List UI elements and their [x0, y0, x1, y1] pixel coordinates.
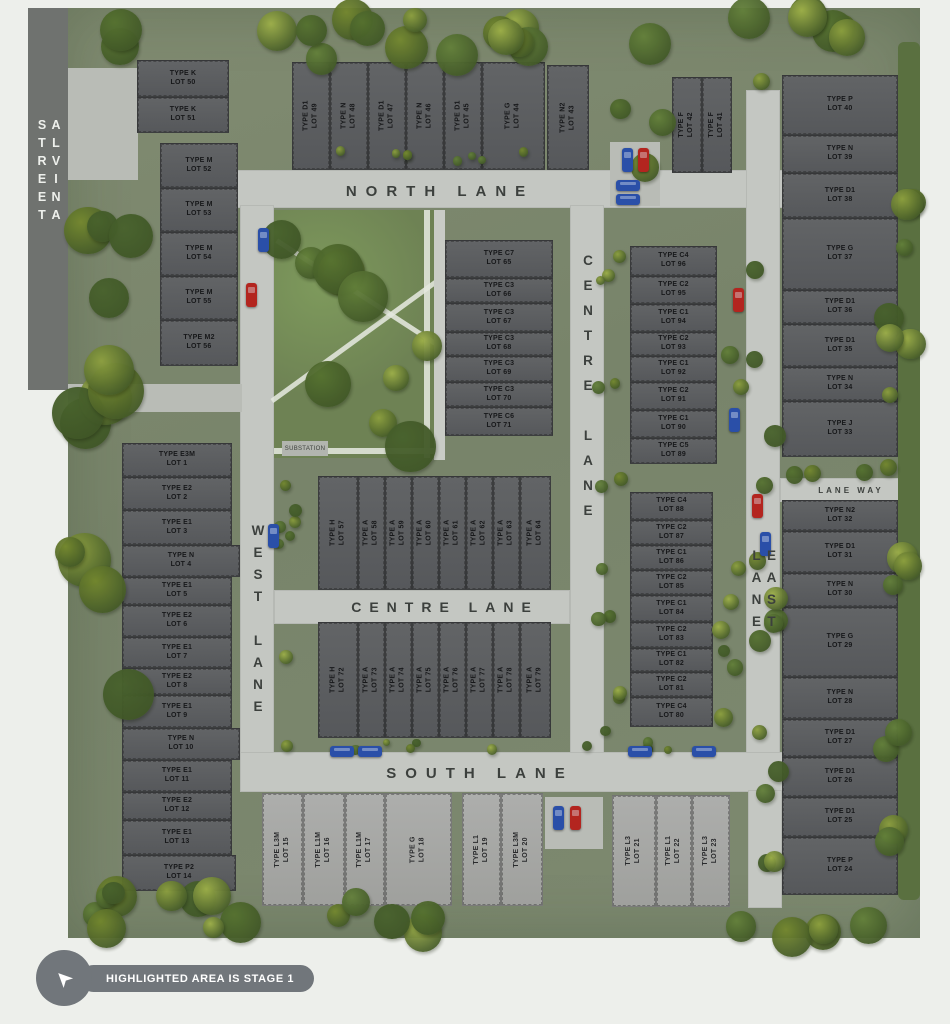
lot-50[interactable]: TYPE KLOT 50: [137, 60, 229, 97]
tree-icon: [885, 719, 912, 746]
lot-61[interactable]: TYPE ALOT 61: [439, 476, 466, 590]
tree-icon: [712, 621, 730, 639]
lot-92[interactable]: TYPE C1LOT 92: [630, 356, 717, 382]
lot-54[interactable]: TYPE MLOT 54: [160, 232, 238, 276]
lot-28[interactable]: TYPE NLOT 28: [782, 677, 898, 719]
lot-68[interactable]: TYPE C3LOT 68: [445, 332, 553, 356]
lot-60[interactable]: TYPE ALOT 60: [412, 476, 439, 590]
tree-icon: [289, 516, 301, 528]
tree-icon: [726, 911, 756, 941]
lot-88[interactable]: TYPE C4LOT 88: [630, 492, 713, 520]
lot-76[interactable]: TYPE ALOT 76: [439, 622, 466, 738]
lot-56[interactable]: TYPE M2LOT 56: [160, 320, 238, 366]
lot-66[interactable]: TYPE C3LOT 66: [445, 278, 553, 303]
tree-icon: [649, 109, 676, 136]
lot-89[interactable]: TYPE C5LOT 89: [630, 438, 717, 464]
lot-29[interactable]: TYPE GLOT 29: [782, 607, 898, 677]
lot-51[interactable]: TYPE KLOT 51: [137, 97, 229, 133]
lot-43[interactable]: TYPE N2LOT 43: [547, 65, 589, 170]
lot-22[interactable]: TYPE L1LOT 22: [656, 795, 692, 907]
lot-94[interactable]: TYPE C1LOT 94: [630, 304, 717, 332]
lot-65[interactable]: TYPE C7LOT 65: [445, 240, 553, 278]
car-icon: [622, 148, 633, 172]
lot-39[interactable]: TYPE NLOT 39: [782, 135, 898, 173]
tree-icon: [281, 740, 293, 752]
lot-57[interactable]: TYPE HLOT 57: [318, 476, 358, 590]
tree-icon: [412, 331, 442, 361]
street-label-centre-lane-horizontal: CENTRE LANE: [330, 590, 560, 624]
lot-95[interactable]: TYPE C2LOT 95: [630, 276, 717, 304]
car-icon: [729, 408, 740, 432]
car-icon: [258, 228, 269, 252]
road-south-stub: [748, 790, 782, 908]
lot-72[interactable]: TYPE HLOT 72: [318, 622, 358, 738]
lot-18[interactable]: TYPE GLOT 18: [385, 793, 452, 906]
tree-icon: [600, 726, 610, 736]
lot-91[interactable]: TYPE C2LOT 91: [630, 382, 717, 410]
tree-icon: [79, 566, 126, 613]
lot-30[interactable]: TYPE NLOT 30: [782, 573, 898, 607]
car-icon: [638, 148, 649, 172]
street-label-lane-way: LANE WAY: [796, 482, 906, 498]
tree-icon: [383, 739, 390, 746]
hedge-right: [898, 42, 920, 900]
car-icon: [692, 746, 716, 757]
tree-icon: [203, 917, 224, 938]
tree-icon: [772, 917, 813, 958]
lot-79[interactable]: TYPE ALOT 79: [520, 622, 551, 738]
lot-12[interactable]: TYPE E2LOT 12: [122, 792, 232, 820]
tree-icon: [894, 552, 921, 579]
tree-icon: [756, 477, 773, 494]
lot-75[interactable]: TYPE ALOT 75: [412, 622, 439, 738]
lot-77[interactable]: TYPE ALOT 77: [466, 622, 493, 738]
tree-icon: [336, 146, 345, 155]
lot-11[interactable]: TYPE E1LOT 11: [122, 760, 232, 792]
lot-83[interactable]: TYPE C2LOT 83: [630, 622, 713, 648]
lot-2[interactable]: TYPE E2LOT 2: [122, 477, 232, 510]
tree-icon: [296, 15, 327, 46]
lot-96[interactable]: TYPE C4LOT 96: [630, 246, 717, 276]
tree-icon: [100, 9, 142, 51]
lot-7[interactable]: TYPE E1LOT 7: [122, 637, 232, 668]
tree-icon: [768, 761, 789, 782]
tree-icon: [610, 99, 630, 119]
tree-icon: [664, 746, 672, 754]
lot-37[interactable]: TYPE GLOT 37: [782, 218, 898, 290]
tree-icon: [55, 537, 85, 567]
tree-icon: [629, 23, 671, 65]
lot-47[interactable]: TYPE D1LOT 47: [368, 62, 406, 170]
stage-arrow-icon: ➤: [36, 950, 92, 1006]
tree-icon: [103, 669, 154, 720]
lot-44[interactable]: TYPE GLOT 44: [482, 62, 545, 170]
lot-42[interactable]: TYPE FLOT 42: [672, 77, 702, 173]
tree-icon: [102, 882, 125, 905]
lot-74[interactable]: TYPE ALOT 74: [385, 622, 412, 738]
lot-15[interactable]: TYPE L3MLOT 15: [262, 793, 303, 906]
tree-icon: [305, 361, 351, 407]
tree-icon: [385, 421, 435, 471]
tree-icon: [883, 575, 903, 595]
car-icon: [628, 746, 652, 757]
lot-16[interactable]: TYPE L1MLOT 16: [303, 793, 345, 906]
tree-icon: [718, 645, 730, 657]
tree-icon: [89, 278, 129, 318]
tree-icon: [87, 909, 126, 948]
tree-icon: [338, 271, 389, 322]
tree-icon: [896, 239, 913, 256]
lot-59[interactable]: TYPE ALOT 59: [385, 476, 412, 590]
tree-icon: [488, 19, 524, 55]
lot-45[interactable]: TYPE D1LOT 45: [444, 62, 482, 170]
lot-40[interactable]: TYPE PLOT 40: [782, 75, 898, 135]
lot-71[interactable]: TYPE C6LOT 71: [445, 407, 553, 436]
lot-4[interactable]: TYPE NLOT 4: [122, 545, 240, 577]
tree-icon: [306, 43, 337, 74]
street-label-centre-lane-vertical: CENTRE LANE: [573, 245, 603, 535]
lot-86[interactable]: TYPE C1LOT 86: [630, 545, 713, 570]
lot-82[interactable]: TYPE C1LOT 82: [630, 648, 713, 672]
tree-icon: [610, 378, 620, 388]
tree-icon: [733, 379, 749, 395]
lot-62[interactable]: TYPE ALOT 62: [466, 476, 493, 590]
substation-label: SUBSTATION: [282, 441, 328, 456]
lot-58[interactable]: TYPE ALOT 58: [358, 476, 385, 590]
tree-icon: [411, 901, 445, 935]
tree-icon: [257, 11, 297, 51]
tree-icon: [342, 888, 370, 916]
tree-icon: [613, 686, 627, 700]
tree-icon: [746, 261, 764, 279]
tree-icon: [891, 189, 922, 220]
lot-53[interactable]: TYPE MLOT 53: [160, 188, 238, 232]
lot-32[interactable]: TYPE N2LOT 32: [782, 500, 898, 531]
lot-21[interactable]: TYPE L3LOT 21: [612, 795, 656, 907]
lot-10[interactable]: TYPE NLOT 10: [122, 728, 240, 760]
street-label-north-lane: NORTH LANE: [310, 176, 570, 206]
lot-52[interactable]: TYPE MLOT 52: [160, 143, 238, 188]
car-icon: [246, 283, 257, 307]
tree-icon: [882, 387, 898, 403]
tree-icon: [453, 156, 462, 165]
driveway-top-left: [68, 68, 138, 180]
tree-icon: [596, 563, 608, 575]
site-plan: SUBSTATION TYPE E3MLOT 1TYPE E2LOT 2TYPE…: [0, 0, 950, 1024]
lot-90[interactable]: TYPE C1LOT 90: [630, 410, 717, 438]
street-label-south-lane: SOUTH LANE: [360, 756, 600, 790]
tree-icon: [385, 26, 428, 69]
car-icon: [733, 288, 744, 312]
lot-49[interactable]: TYPE D1LOT 49: [292, 62, 330, 170]
lot-70[interactable]: TYPE C3LOT 70: [445, 382, 553, 407]
lot-81[interactable]: TYPE C2LOT 81: [630, 672, 713, 697]
lot-55[interactable]: TYPE MLOT 55: [160, 276, 238, 320]
tree-icon: [876, 324, 904, 352]
tree-icon: [764, 851, 785, 872]
stage-legend-label: HIGHLIGHTED AREA IS STAGE 1: [80, 965, 314, 992]
lot-19[interactable]: TYPE L1LOT 19: [462, 793, 501, 906]
street-label-alvina: ALVINA STREET: [31, 118, 67, 328]
lot-5[interactable]: TYPE E1LOT 5: [122, 577, 232, 605]
tree-icon: [403, 150, 412, 159]
tree-icon: [591, 612, 606, 627]
lot-13[interactable]: TYPE E1LOT 13: [122, 820, 232, 855]
tree-icon: [764, 425, 786, 447]
tree-icon: [383, 365, 409, 391]
tree-icon: [156, 881, 187, 912]
tree-icon: [614, 472, 628, 486]
lot-41[interactable]: TYPE FLOT 41: [702, 77, 732, 173]
tree-icon: [279, 650, 293, 664]
lot-20[interactable]: TYPE L3MLOT 20: [501, 793, 543, 906]
lot-31[interactable]: TYPE D1LOT 31: [782, 531, 898, 573]
lot-78[interactable]: TYPE ALOT 78: [493, 622, 520, 738]
tree-icon: [875, 827, 904, 856]
lot-1[interactable]: TYPE E3MLOT 1: [122, 443, 232, 477]
car-icon: [616, 194, 640, 205]
lot-93[interactable]: TYPE C2LOT 93: [630, 332, 717, 356]
tree-icon: [829, 19, 866, 56]
tree-icon: [756, 784, 775, 803]
tree-icon: [850, 907, 887, 944]
tree-icon: [374, 904, 409, 939]
car-icon: [752, 494, 763, 518]
street-label-east-lane: EAST LANE: [749, 548, 779, 743]
tree-icon: [350, 11, 385, 46]
lot-38[interactable]: TYPE D1LOT 38: [782, 173, 898, 218]
lot-33[interactable]: TYPE JLOT 33: [782, 401, 898, 457]
lot-3[interactable]: TYPE E1LOT 3: [122, 510, 232, 545]
lot-84[interactable]: TYPE C1LOT 84: [630, 595, 713, 622]
lot-87[interactable]: TYPE C2LOT 87: [630, 520, 713, 545]
lot-64[interactable]: TYPE ALOT 64: [520, 476, 551, 590]
tree-icon: [746, 351, 763, 368]
tree-icon: [487, 744, 497, 754]
lot-67[interactable]: TYPE C3LOT 67: [445, 303, 553, 332]
lot-73[interactable]: TYPE ALOT 73: [358, 622, 385, 738]
tree-icon: [403, 8, 427, 32]
lot-69[interactable]: TYPE C3LOT 69: [445, 356, 553, 382]
lot-80[interactable]: TYPE C4LOT 80: [630, 697, 713, 727]
lot-26[interactable]: TYPE D1LOT 26: [782, 757, 898, 797]
car-icon: [570, 806, 581, 830]
lot-6[interactable]: TYPE E2LOT 6: [122, 605, 232, 637]
car-icon: [553, 806, 564, 830]
car-icon: [330, 746, 354, 757]
street-label-west-lane: WEST LANE: [243, 522, 273, 722]
lot-85[interactable]: TYPE C2LOT 85: [630, 570, 713, 595]
lot-63[interactable]: TYPE ALOT 63: [493, 476, 520, 590]
lot-34[interactable]: TYPE NLOT 34: [782, 367, 898, 401]
car-icon: [616, 180, 640, 191]
tree-icon: [721, 346, 739, 364]
lot-23[interactable]: TYPE L3LOT 23: [692, 795, 730, 907]
tree-icon: [280, 480, 291, 491]
tree-icon: [856, 464, 873, 481]
